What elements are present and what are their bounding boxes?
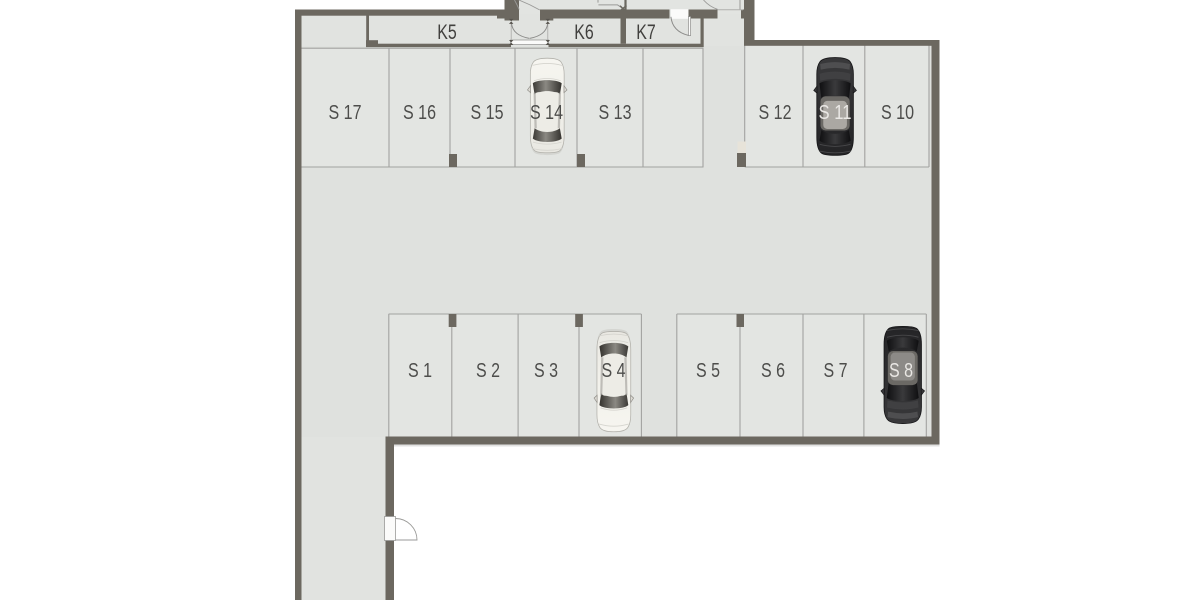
svg-text:S 14: S 14 (530, 102, 563, 124)
svg-text:S 1: S 1 (408, 360, 432, 382)
svg-text:S 10: S 10 (881, 102, 914, 124)
svg-text:S 12: S 12 (759, 102, 792, 124)
svg-text:K5: K5 (437, 21, 457, 44)
svg-text:S 15: S 15 (471, 102, 504, 124)
svg-text:S 2: S 2 (476, 360, 500, 382)
svg-text:K7: K7 (636, 21, 656, 44)
svg-text:S 6: S 6 (761, 360, 785, 382)
svg-text:S 13: S 13 (599, 102, 632, 124)
svg-text:K6: K6 (574, 21, 594, 44)
svg-text:S 3: S 3 (534, 360, 558, 382)
svg-text:S 4: S 4 (602, 360, 626, 382)
svg-text:S 8: S 8 (889, 360, 913, 382)
svg-text:S 16: S 16 (403, 102, 436, 124)
svg-text:S 17: S 17 (329, 102, 362, 124)
svg-text:S 7: S 7 (824, 360, 848, 382)
svg-text:S 5: S 5 (696, 360, 720, 382)
svg-text:S 11: S 11 (819, 102, 852, 124)
